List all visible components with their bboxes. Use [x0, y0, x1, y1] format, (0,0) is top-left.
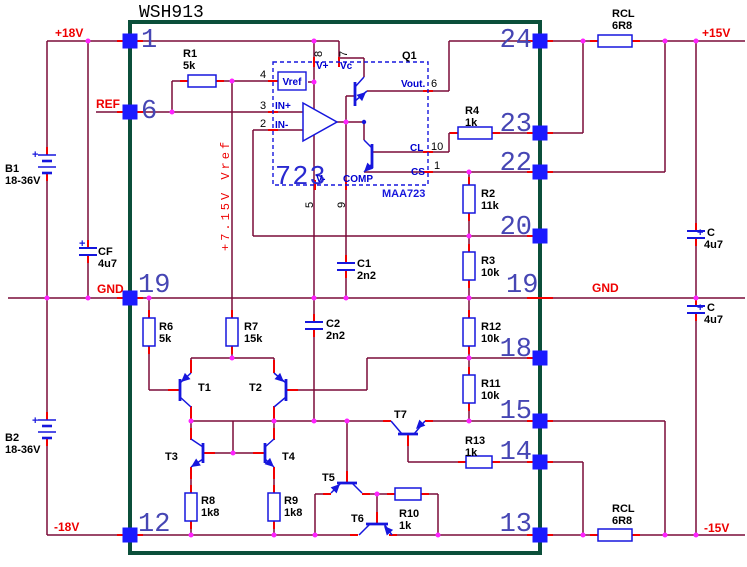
battery-label: B2	[5, 432, 19, 444]
capacitor-label: C1	[357, 258, 371, 270]
junction-dot	[230, 356, 235, 361]
capacitor-value: 4u7	[98, 258, 117, 270]
ic-pin-number: 6	[431, 78, 437, 90]
capacitor-label: C	[707, 227, 715, 239]
transistor-label: T7	[394, 409, 407, 421]
module-pin-square	[533, 229, 548, 244]
net-label-ref: REF	[96, 97, 120, 111]
junction-dot	[581, 39, 586, 44]
ic-pin-name: IN-	[275, 120, 288, 131]
capacitor-value: 2n2	[357, 270, 376, 282]
transistor-label: T5	[322, 472, 335, 484]
schematic-page: WSH913+18VREFGNDGND+15V-15V-18V+7.15V Vr…	[0, 0, 747, 567]
junction-dot	[230, 79, 235, 84]
junction-dot	[312, 39, 317, 44]
capacitor-value: 2n2	[326, 330, 345, 342]
pin-label-24: 24	[500, 26, 532, 56]
junction-dot	[663, 533, 668, 538]
resistor-value: 1k	[465, 447, 478, 459]
ic-pin-name: COMP	[343, 174, 373, 185]
junction-dot	[467, 296, 472, 301]
junction-dot	[272, 533, 277, 538]
capacitor-polarity: +	[697, 302, 703, 314]
labels: WSH913+18VREFGNDGND+15V-15V-18V+7.15V Vr…	[5, 3, 730, 540]
resistor-body	[188, 75, 216, 87]
capacitor-value: 4u7	[704, 239, 723, 251]
battery-value: 18-36V	[5, 444, 41, 456]
resistor-label: R6	[159, 321, 173, 333]
net-label-minus18: -18V	[54, 520, 79, 534]
resistor-value: 6R8	[612, 20, 632, 32]
pin-label-1: 1	[141, 26, 157, 56]
resistor-body	[463, 252, 475, 280]
junction-dot	[189, 419, 194, 424]
ic-pin-name: V-	[316, 174, 325, 185]
junction-dot	[312, 296, 317, 301]
junction-dot	[436, 533, 441, 538]
junction-dot	[272, 419, 277, 424]
module-pin-square	[123, 291, 138, 306]
ic-node-dot	[362, 120, 366, 124]
junction-dot	[467, 170, 472, 175]
ic-pin-name: CS	[411, 167, 425, 178]
resistor-body	[463, 318, 475, 346]
net-label-gnd-left: GND	[97, 282, 124, 296]
resistor-body	[598, 35, 632, 47]
resistor-label: R1	[183, 48, 197, 60]
resistor-label: RCL	[612, 503, 635, 515]
resistor-value: 10k	[481, 267, 500, 279]
capacitor-value: 4u7	[704, 314, 723, 326]
junction-dot	[86, 39, 91, 44]
transistor-label: T2	[249, 382, 262, 394]
resistor-label: R4	[465, 105, 480, 117]
transistor-lead	[352, 483, 362, 493]
transistor-label: T6	[351, 513, 364, 525]
junction-dot	[694, 533, 699, 538]
transistor-label: T4	[282, 451, 296, 463]
resistor-body	[226, 318, 238, 346]
ic-pin-number: 1	[434, 160, 440, 172]
pin-label-13: 13	[500, 510, 532, 540]
pin-label-15: 15	[500, 397, 532, 427]
battery-value: 18-36V	[5, 175, 41, 187]
ic-pin-name: Vc	[340, 61, 353, 72]
junction-dot	[375, 492, 380, 497]
pin-label-19-right: 19	[506, 271, 538, 301]
battery-polarity: +	[32, 149, 38, 161]
pin-label-18: 18	[500, 335, 532, 365]
resistor-label: R10	[399, 508, 419, 520]
capacitor-label: C2	[326, 318, 340, 330]
junction-dot	[345, 419, 350, 424]
junction-dot	[170, 110, 175, 115]
junction-dot	[467, 419, 472, 424]
transistor-label: T1	[198, 382, 211, 394]
ic-pin-number: 8	[313, 51, 325, 57]
junction-dot	[312, 80, 317, 85]
net-label-vref-rail: +7.15V Vref	[219, 139, 233, 251]
pin-label-22: 22	[500, 149, 532, 179]
resistor-value: 1k	[465, 117, 478, 129]
resistor-body	[185, 493, 197, 521]
resistor-value: 15k	[244, 333, 263, 345]
battery-label: B1	[5, 163, 19, 175]
resistor-value: 5k	[183, 60, 196, 72]
junction-dot	[344, 296, 349, 301]
junction-dot	[344, 120, 349, 125]
pin-label-12: 12	[138, 510, 170, 540]
ic-pin-number: 5	[304, 202, 316, 208]
transistor-lead	[180, 397, 191, 407]
transistor-arrow	[357, 92, 366, 101]
resistor-value: 5k	[159, 333, 172, 345]
resistor-label: R13	[465, 435, 485, 447]
ic-pin-number: 4	[260, 69, 266, 81]
pin-label-19-left: 19	[138, 271, 170, 301]
module-pin-square	[533, 528, 548, 543]
resistor-body	[598, 529, 632, 541]
resistor-label: R2	[481, 188, 495, 200]
net-label-gnd-right: GND	[592, 281, 619, 295]
resistor-label: RCL	[612, 8, 635, 20]
module-pin-square	[123, 528, 138, 543]
resistor-value: 1k8	[284, 507, 302, 519]
pin-label-20: 20	[500, 213, 532, 243]
module-pin-square	[533, 34, 548, 49]
module-pin-square	[123, 34, 138, 49]
junction-dot	[663, 39, 668, 44]
module-pin-square	[533, 351, 548, 366]
junction-dot	[231, 451, 236, 456]
capacitor-label: C	[707, 302, 715, 314]
resistor-body	[143, 318, 155, 346]
circuit-schematic: WSH913+18VREFGNDGND+15V-15V-18V+7.15V Vr…	[0, 0, 747, 567]
resistor-label: R7	[244, 321, 258, 333]
battery-polarity: +	[32, 415, 38, 427]
transistor-lead	[274, 397, 286, 407]
ic-part-number: MAA723	[382, 188, 425, 200]
junction-dot	[467, 356, 472, 361]
resistor-value: 6R8	[612, 515, 632, 527]
transistor-label: T3	[165, 451, 178, 463]
resistor-value: 10k	[481, 390, 500, 402]
capacitor-polarity: +	[697, 227, 703, 239]
module-pin-square	[533, 414, 548, 429]
transistor-arrow	[191, 459, 201, 467]
resistor-body	[463, 375, 475, 403]
opamp-triangle	[303, 103, 337, 141]
net-label-plus15: +15V	[702, 26, 730, 40]
resistor-body	[395, 488, 421, 500]
module-pin-square	[533, 455, 548, 470]
ic-pin-number: 9	[336, 202, 348, 208]
resistor-value: 1k	[399, 520, 412, 532]
resistor-value: 11k	[481, 200, 500, 212]
resistor-label: R9	[284, 495, 298, 507]
resistor-value: 10k	[481, 333, 500, 345]
ic-pin-name: CL	[410, 143, 423, 154]
junction-dot	[313, 533, 318, 538]
junction-dot	[581, 533, 586, 538]
module-pin-square	[533, 126, 548, 141]
transistor-lead	[391, 421, 402, 434]
ic-pin-name: V+	[316, 61, 329, 72]
pin-label-6: 6	[141, 97, 157, 127]
junction-dot	[86, 296, 91, 301]
resistor-label: R11	[481, 378, 501, 390]
ic-pin-number: 3	[260, 100, 266, 112]
module-pin-square	[533, 165, 548, 180]
resistor-body	[268, 493, 280, 521]
resistor-label: R12	[481, 321, 501, 333]
module-title: WSH913	[139, 3, 204, 23]
transistor-lead	[359, 524, 370, 535]
pin-label-23: 23	[500, 110, 532, 140]
net-label-plus18: +18V	[55, 26, 83, 40]
transistor-lead	[191, 439, 203, 447]
junction-dot	[467, 234, 472, 239]
net-label-minus15: -15V	[704, 521, 729, 535]
resistor-body	[463, 185, 475, 213]
capacitor-label: CF	[98, 246, 113, 258]
pin-label-14: 14	[500, 438, 532, 468]
junction-dot	[312, 419, 317, 424]
module-pin-square	[123, 105, 138, 120]
ic-pin-name: Vout.	[401, 79, 425, 90]
junction-dot	[694, 296, 699, 301]
ic-pin-number: 2	[260, 118, 266, 130]
transistor-arrow	[416, 420, 425, 429]
junction-dot	[189, 533, 194, 538]
ic-pin-number: 7	[338, 51, 350, 57]
resistor-value: 1k8	[201, 507, 219, 519]
capacitor-polarity: +	[79, 238, 85, 250]
ic-pin-number: 10	[431, 141, 443, 153]
junction-dot	[694, 39, 699, 44]
ic-vref-text: Vref	[283, 77, 303, 88]
ic-designator: Q1	[402, 50, 417, 62]
resistor-label: R3	[481, 255, 495, 267]
junction-dot	[45, 296, 50, 301]
resistor-label: R8	[201, 495, 215, 507]
ic-pin-name: IN+	[275, 101, 291, 112]
